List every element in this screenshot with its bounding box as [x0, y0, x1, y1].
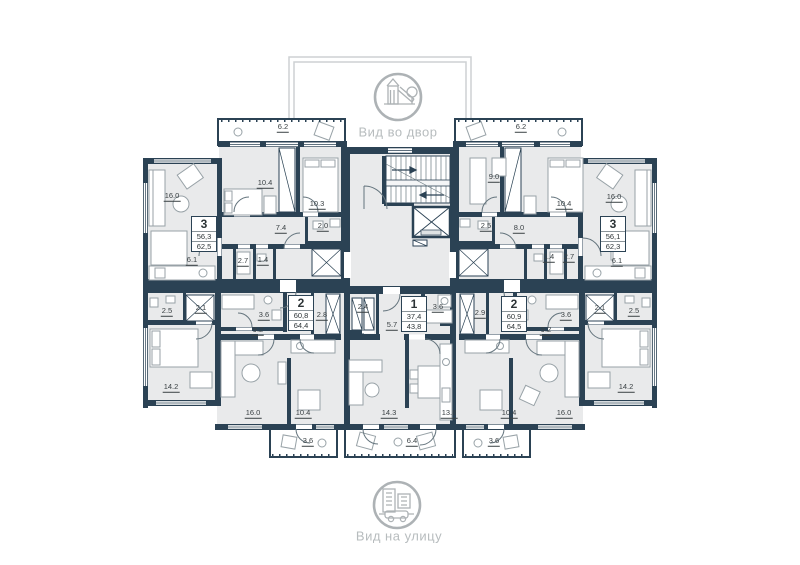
room-area-label: 2.5 [161, 307, 173, 317]
room-area-label: 6.4 [406, 437, 418, 447]
floor-plan-drawing [0, 0, 800, 565]
room-area-label: 2.1 [594, 304, 606, 314]
apartment-number: 3 [601, 217, 625, 231]
room-area-label: 10.4 [556, 200, 573, 210]
room-area-label: 16.0 [556, 409, 573, 419]
room-area-label: 3.6 [302, 437, 314, 447]
apartment-area1: 60,8 [289, 310, 313, 320]
room-area-label: 2.5 [480, 222, 492, 232]
apartment-area2: 62,5 [192, 241, 216, 251]
room-area-label: 2.1 [195, 304, 207, 314]
room-area-label: 16.0 [164, 192, 181, 202]
room-area-label: 2.8 [316, 311, 328, 321]
apartment-area1: 56,3 [192, 231, 216, 241]
apartment-area1: 60,9 [502, 311, 526, 321]
room-area-label: 9.2 [252, 326, 264, 336]
street-view-label: Вид на улицу [356, 529, 442, 544]
elevator [413, 207, 450, 237]
staircase [386, 156, 450, 203]
room-area-label: 16.0 [245, 409, 262, 419]
room-area-label: 6.2 [277, 123, 289, 132]
room-area-label: 3.6 [560, 311, 572, 321]
room-area-label: 8.0 [513, 224, 525, 234]
room-area-label: 7.4 [275, 224, 287, 234]
apartment-info-box[interactable]: 3 56,1 62,3 [600, 216, 626, 252]
floor-plan-page: Вид во двор Вид на улицу 3 56,3 62,5 3 5… [0, 0, 800, 565]
room-area-label: 2.0 [317, 222, 329, 232]
apartment-area2: 64,5 [502, 321, 526, 331]
apartment-area2: 62,3 [601, 241, 625, 251]
room-area-label: 6.1 [186, 256, 198, 266]
room-area-label: 10.4 [257, 179, 274, 189]
apartment-area1: 37,4 [402, 311, 426, 321]
room-area-label: 13.8 [441, 409, 458, 419]
apartment-area2: 64,4 [289, 320, 313, 330]
playground-icon [375, 74, 421, 120]
room-area-label: 6.1 [611, 257, 623, 267]
room-area-label: 9.2 [540, 326, 552, 336]
room-area-label: 14.2 [618, 383, 635, 393]
apartment-number: 2 [502, 297, 526, 311]
apartment-area1: 56,1 [601, 231, 625, 241]
room-area-label: 10.4 [295, 409, 312, 419]
street-buildings-icon [374, 482, 420, 528]
apartment-number: 3 [192, 217, 216, 231]
apartment-info-box[interactable]: 3 56,3 62,5 [191, 216, 217, 252]
apartment-info-box[interactable]: 2 60,9 64,5 [501, 296, 527, 332]
room-area-label: 3.6 [488, 437, 500, 447]
apartment-info-box[interactable]: 2 60,8 64,4 [288, 295, 314, 331]
courtyard-view-label: Вид во двор [358, 125, 437, 140]
apartment-number: 1 [402, 297, 426, 311]
room-area-label: 6.2 [515, 123, 527, 132]
room-area-label: 2.5 [628, 307, 640, 317]
room-area-label: 3.6 [432, 303, 444, 313]
room-area-label: 1.4 [257, 256, 269, 266]
room-area-label: 5.7 [386, 321, 398, 331]
room-area-label: 16.0 [606, 193, 623, 203]
room-area-label: 14.2 [163, 383, 180, 393]
room-area-label: 10.4 [501, 409, 518, 419]
apartment-info-box[interactable]: 1 37,4 43,8 [401, 296, 427, 332]
room-area-label: 3.6 [258, 311, 270, 321]
room-area-label: 2.4 [357, 303, 369, 313]
room-area-label: 9.0 [488, 173, 500, 183]
room-area-label: 2.7 [563, 253, 575, 263]
room-area-label: 14.3 [381, 409, 398, 419]
room-area-label: 10.3 [309, 200, 326, 210]
apartment-number: 2 [289, 296, 313, 310]
apartment-area2: 43,8 [402, 321, 426, 331]
room-area-label: 1.4 [543, 253, 555, 263]
room-area-label: 2.9 [474, 309, 486, 319]
room-area-label: 2.7 [237, 257, 249, 267]
